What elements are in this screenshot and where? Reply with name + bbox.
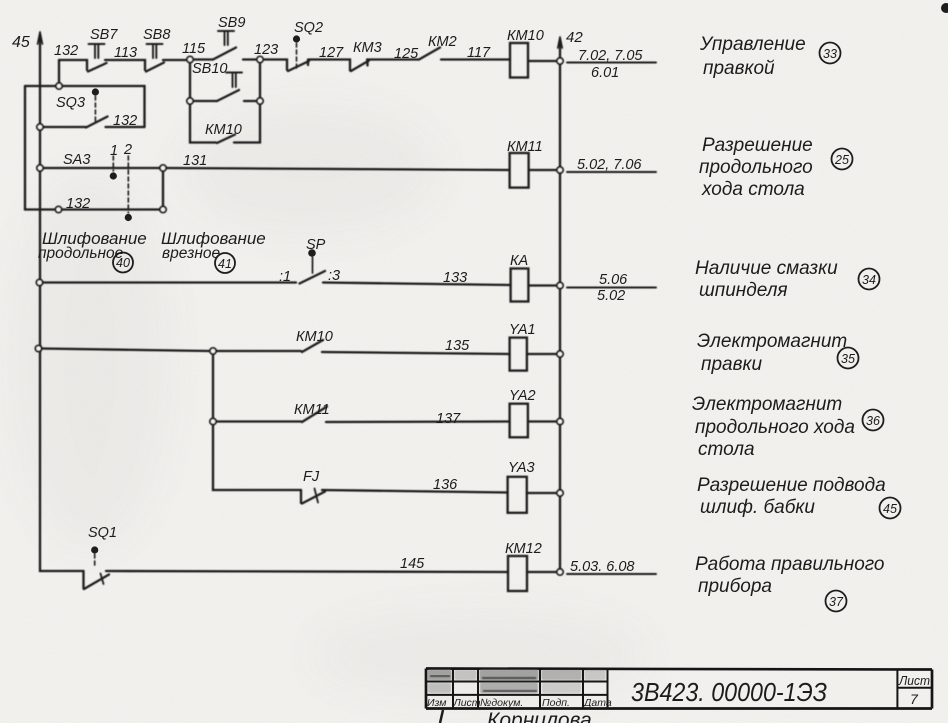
svg-text:Работа правильного: Работа правильного: [695, 554, 884, 575]
svg-text:123: 123: [254, 42, 278, 58]
svg-text:продольное: продольное: [38, 245, 124, 262]
svg-text:136: 136: [433, 477, 458, 493]
svg-text:33: 33: [823, 47, 837, 61]
svg-text:127: 127: [319, 45, 344, 61]
svg-text:45: 45: [883, 502, 897, 516]
svg-text::3: :3: [328, 268, 340, 284]
svg-text:125: 125: [394, 46, 419, 62]
svg-text:SB9: SB9: [218, 15, 245, 31]
svg-text:SQ1: SQ1: [88, 525, 117, 541]
svg-text:КМ2: КМ2: [428, 34, 457, 50]
svg-text:35: 35: [841, 352, 855, 366]
svg-text:КМ12: КМ12: [505, 541, 542, 557]
svg-text:145: 145: [400, 556, 425, 572]
svg-text:правкой: правкой: [703, 58, 775, 79]
svg-text:132: 132: [113, 113, 137, 129]
svg-text:7.02, 7.05: 7.02, 7.05: [578, 48, 643, 64]
svg-text:131: 131: [183, 153, 207, 169]
svg-text:Лист: Лист: [898, 673, 930, 688]
svg-text:КМ3: КМ3: [353, 40, 382, 56]
svg-text:SB8: SB8: [143, 27, 170, 43]
svg-text:Наличие смазки: Наличие смазки: [695, 258, 838, 279]
svg-text:5.02: 5.02: [597, 288, 625, 304]
svg-text:45: 45: [12, 34, 30, 51]
svg-text:КМ10: КМ10: [205, 122, 242, 138]
svg-text:Электромагнит: Электромагнит: [697, 331, 847, 352]
svg-text:стола: стола: [698, 439, 755, 460]
svg-text:Разрешение подвода: Разрешение подвода: [697, 475, 886, 496]
svg-text:115: 115: [182, 41, 206, 57]
svg-text:2: 2: [123, 142, 132, 158]
svg-text:Подп.: Подп.: [542, 697, 570, 709]
svg-text:КА: КА: [510, 253, 528, 269]
svg-text:правки: правки: [701, 354, 762, 375]
svg-text:прибора: прибора: [698, 576, 772, 597]
svg-text:YA1: YA1: [509, 322, 536, 338]
svg-text:132: 132: [66, 196, 90, 212]
svg-text:SA3: SA3: [63, 152, 90, 168]
svg-text:Изм: Изм: [427, 697, 446, 709]
svg-text:36: 36: [866, 414, 880, 428]
svg-text:КМ11: КМ11: [507, 139, 543, 155]
svg-text:Разрешение: Разрешение: [702, 135, 813, 156]
svg-text:137: 137: [436, 411, 461, 427]
svg-text::1: :1: [279, 269, 291, 285]
svg-text:7: 7: [910, 691, 919, 707]
svg-text:SB10: SB10: [192, 61, 227, 77]
svg-text:3В423. 00000-1ЭЗ: 3В423. 00000-1ЭЗ: [631, 677, 827, 707]
svg-text:YA2: YA2: [509, 388, 536, 404]
svg-text:№докум.: №докум.: [480, 697, 523, 709]
svg-text:SB7: SB7: [90, 27, 118, 43]
svg-text:FJ: FJ: [303, 469, 320, 485]
svg-text:1: 1: [110, 143, 118, 159]
svg-text:Управление: Управление: [699, 34, 806, 55]
svg-text:продольного хода: продольного хода: [695, 417, 855, 438]
svg-text:Электромагнит: Электромагнит: [692, 394, 842, 415]
svg-text:37: 37: [829, 595, 844, 609]
svg-text:Корнилова: Корнилова: [487, 709, 592, 723]
svg-text:КМ10: КМ10: [296, 329, 333, 345]
svg-text:5.03. 6.08: 5.03. 6.08: [570, 559, 635, 575]
svg-text:SP: SP: [306, 237, 326, 253]
svg-text:113: 113: [114, 45, 137, 61]
svg-text:25: 25: [834, 153, 849, 167]
svg-text:шпинделя: шпинделя: [699, 280, 788, 301]
svg-text:продольного: продольного: [699, 157, 813, 178]
svg-text:132: 132: [54, 43, 78, 59]
svg-text:Лист: Лист: [453, 697, 481, 709]
svg-text:врезное: врезное: [162, 245, 221, 262]
svg-text:YA3: YA3: [508, 460, 535, 476]
svg-text:хода стола: хода стола: [701, 179, 805, 200]
svg-text:КМ11: КМ11: [294, 402, 330, 418]
svg-text:Дата: Дата: [583, 697, 612, 709]
svg-text:SQ3: SQ3: [56, 95, 85, 111]
svg-text:42: 42: [566, 29, 583, 46]
svg-text:133: 133: [443, 270, 467, 286]
svg-text:КМ10: КМ10: [507, 28, 544, 44]
svg-text:5.02, 7.06: 5.02, 7.06: [577, 157, 642, 173]
svg-text:117: 117: [467, 45, 491, 61]
svg-text:135: 135: [445, 338, 470, 354]
svg-text:SQ2: SQ2: [294, 20, 323, 36]
svg-text:34: 34: [862, 273, 876, 287]
svg-text:шлиф. бабки: шлиф. бабки: [700, 497, 815, 518]
svg-text:6.01: 6.01: [591, 65, 619, 81]
svg-text:5.06: 5.06: [599, 272, 628, 288]
